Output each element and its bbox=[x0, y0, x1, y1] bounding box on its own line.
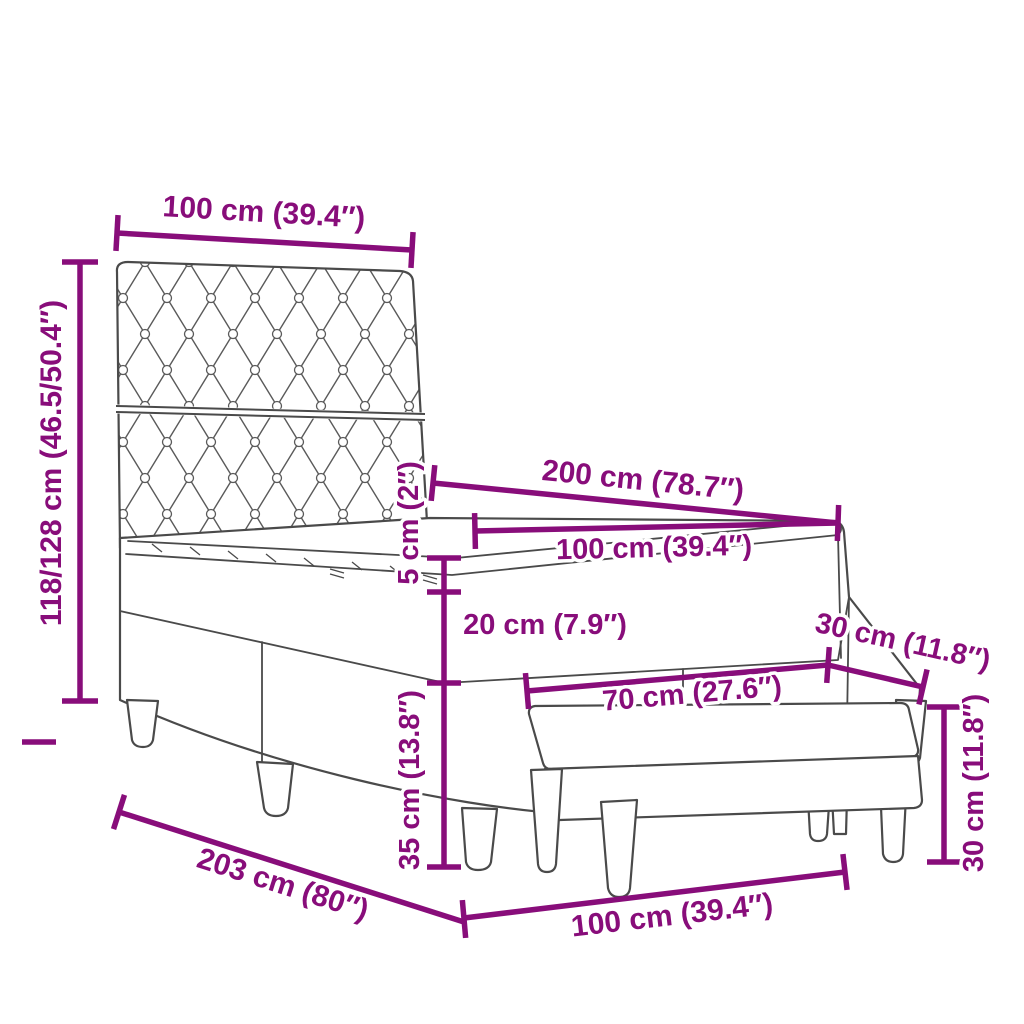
dim-label-headboard-width: 100 cm (39.4″) bbox=[162, 190, 366, 235]
dim-label-mattress-height: 20 cm (7.9″) bbox=[463, 609, 627, 641]
bed-leg bbox=[462, 808, 497, 870]
bench-leg-front-left bbox=[531, 769, 562, 872]
diagram-canvas: 100 cm (39.4″) 118/128 cm (46.5/50.4″) 2… bbox=[0, 0, 1024, 1024]
bench-leg-front-right bbox=[601, 800, 637, 897]
dim-label-bed-width: 100 cm (39.4″) bbox=[569, 887, 774, 943]
dim-label-mattress-width: 100 cm (39.4″) bbox=[556, 530, 753, 566]
headboard-panel bbox=[117, 262, 427, 548]
dim-label-topper-height: 5 cm (2″) bbox=[393, 461, 425, 585]
bench bbox=[529, 703, 922, 897]
bed-dimension-diagram: 100 cm (39.4″) 118/128 cm (46.5/50.4″) 2… bbox=[0, 0, 1024, 1024]
bed-leg bbox=[257, 762, 293, 816]
dim-label-base-height: 35 cm (13.8″) bbox=[394, 690, 426, 870]
bed-leg bbox=[127, 700, 158, 747]
headboard bbox=[116, 262, 427, 548]
dim-label-headboard-height: 118/128 cm (46.5/50.4″) bbox=[35, 300, 68, 626]
dim-label-bench-height: 30 cm (11.8″) bbox=[958, 694, 990, 872]
dim-line-headboard-width bbox=[117, 233, 412, 250]
